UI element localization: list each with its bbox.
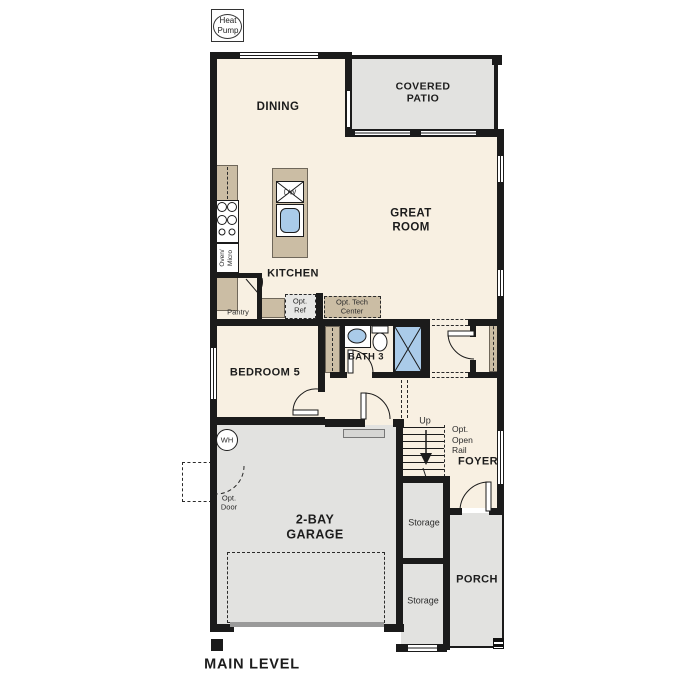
room-label-storage-rear: Storage xyxy=(407,595,439,606)
label-oven-micro: Oven/ Micro xyxy=(219,249,235,266)
room-label-great-room: GREAT ROOM xyxy=(390,207,431,234)
heat-pump-label: Heat Pump xyxy=(218,16,239,36)
room-label-kitchen: KITCHEN xyxy=(267,268,319,281)
label-opt-tech-center: Opt. Tech Center xyxy=(336,298,368,317)
room-label-porch: PORCH xyxy=(456,574,498,587)
plan-linework xyxy=(0,0,687,687)
room-label-garage: 2-BAY GARAGE xyxy=(286,512,343,542)
room-label-dining: DINING xyxy=(257,101,300,115)
room-label-storage-under-stairs: Storage xyxy=(408,517,440,528)
main-level-marker xyxy=(211,639,223,651)
label-pantry: Pantry xyxy=(227,307,249,316)
plan-title: MAIN LEVEL xyxy=(204,656,300,673)
label-up: Up xyxy=(419,415,431,426)
label-dw: DW xyxy=(284,187,297,196)
label-wh: WH xyxy=(221,435,234,444)
room-label-bedroom-5: BEDROOM 5 xyxy=(230,367,300,380)
room-label-covered-patio: COVERED PATIO xyxy=(396,81,451,106)
label-opt-open-rail: Opt. Open Rail xyxy=(452,424,473,456)
room-label-foyer: FOYER xyxy=(458,456,498,469)
floorplan-canvas: Heat Pump DINING COVERED PATIO GREAT ROO… xyxy=(0,0,687,687)
label-opt-ref: Opt. Ref xyxy=(293,297,307,316)
room-label-bath-3: BATH 3 xyxy=(348,351,384,362)
label-opt-door: Opt. Door xyxy=(221,494,237,513)
